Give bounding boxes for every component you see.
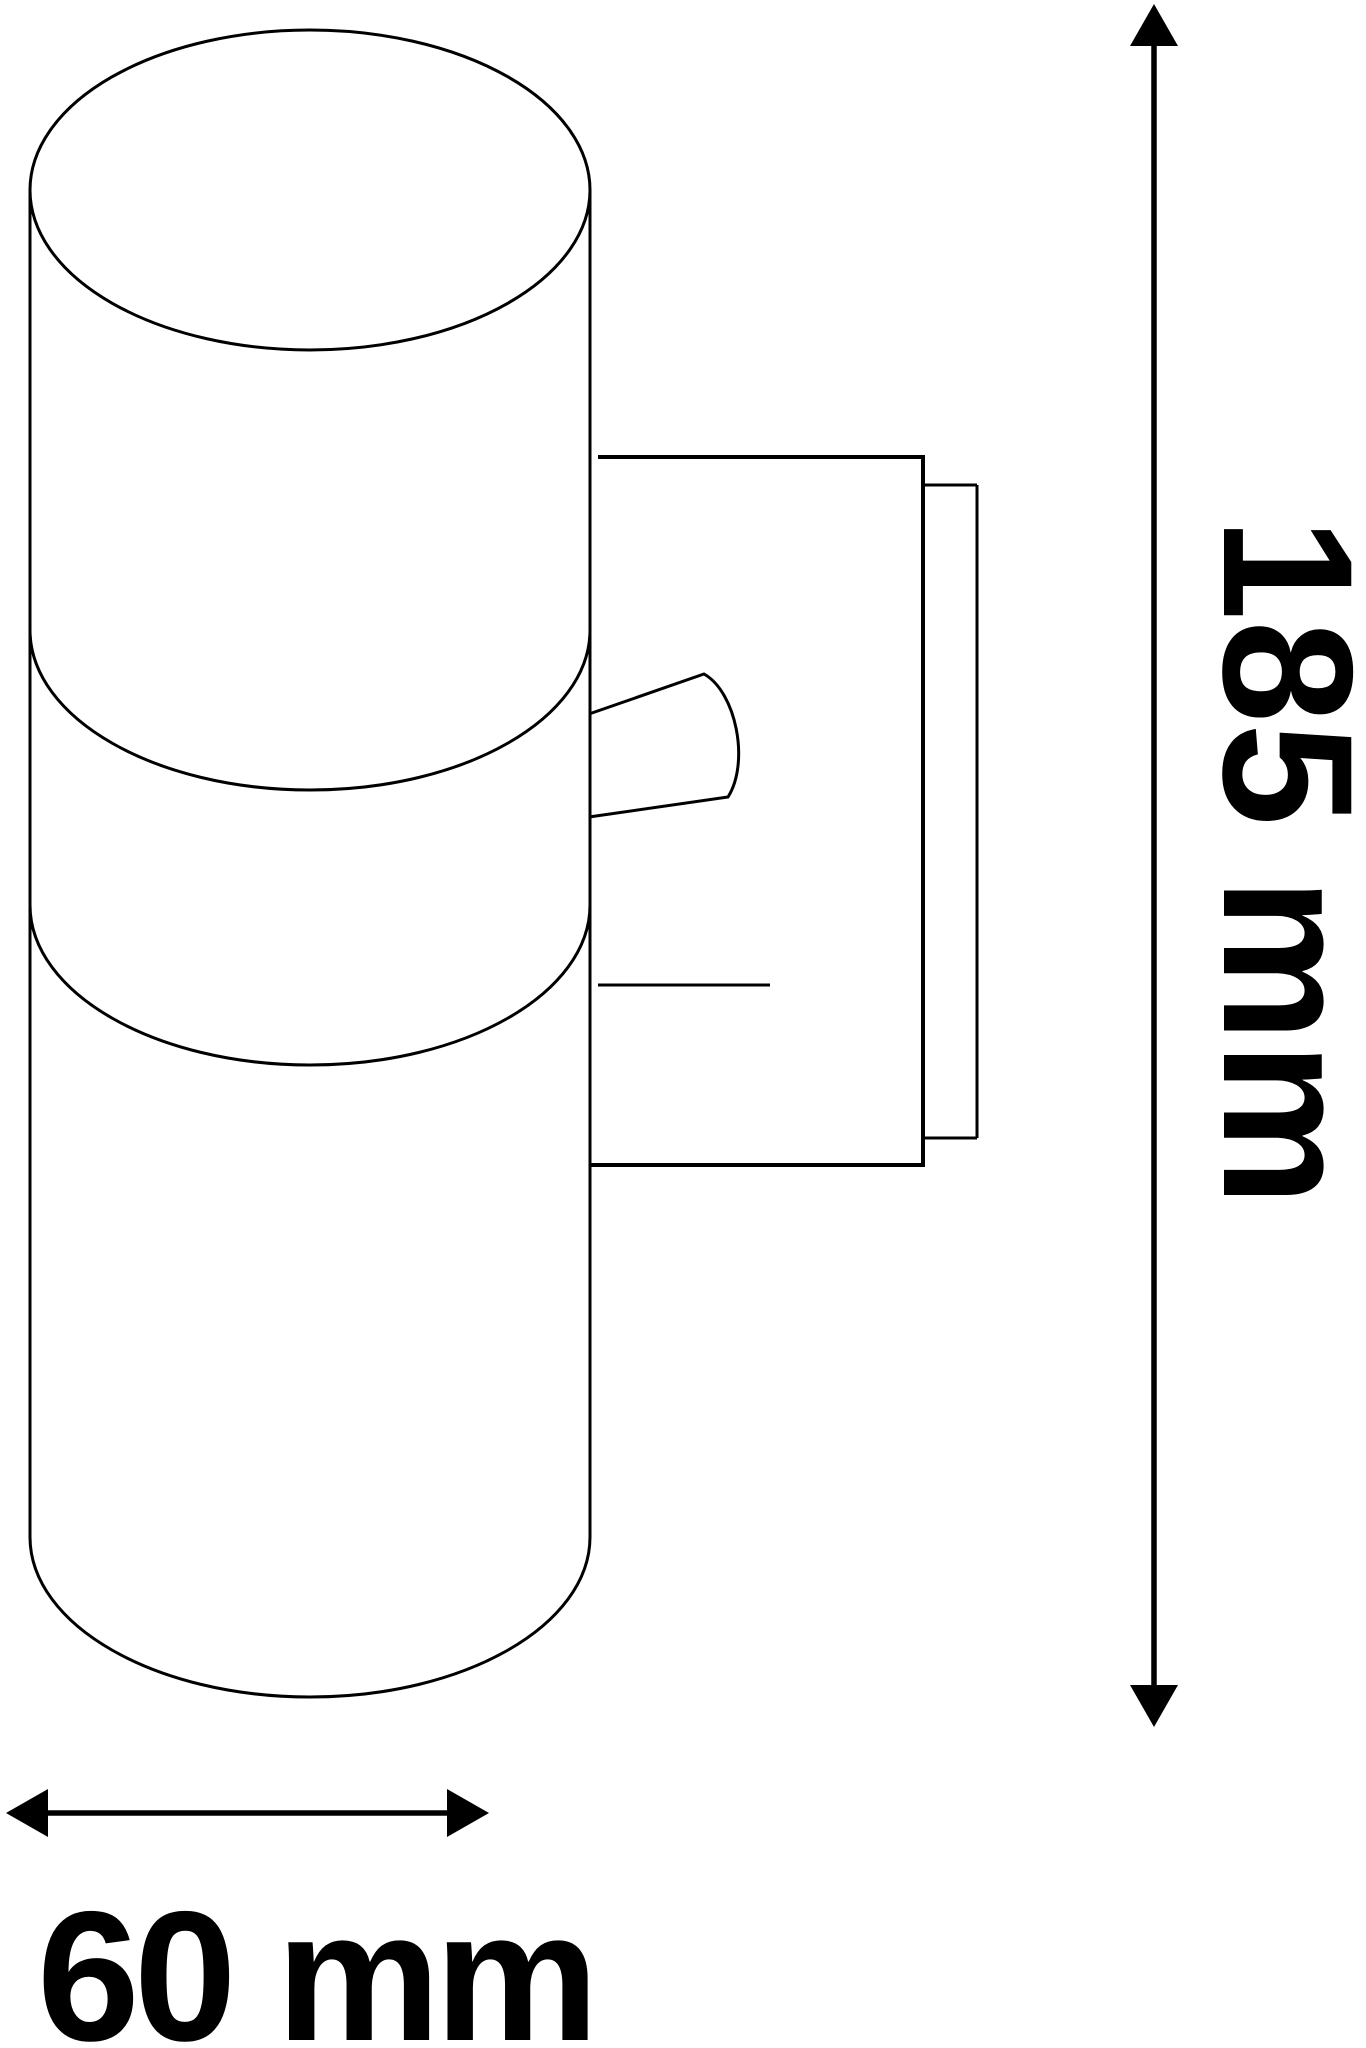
height-dimension-label: 185 mm bbox=[1184, 517, 1366, 1206]
canvas-background bbox=[0, 0, 1366, 2048]
width-dimension-label: 60 mm bbox=[37, 1874, 593, 2048]
dimension-diagram: 185 mm 60 mm bbox=[0, 0, 1366, 2048]
